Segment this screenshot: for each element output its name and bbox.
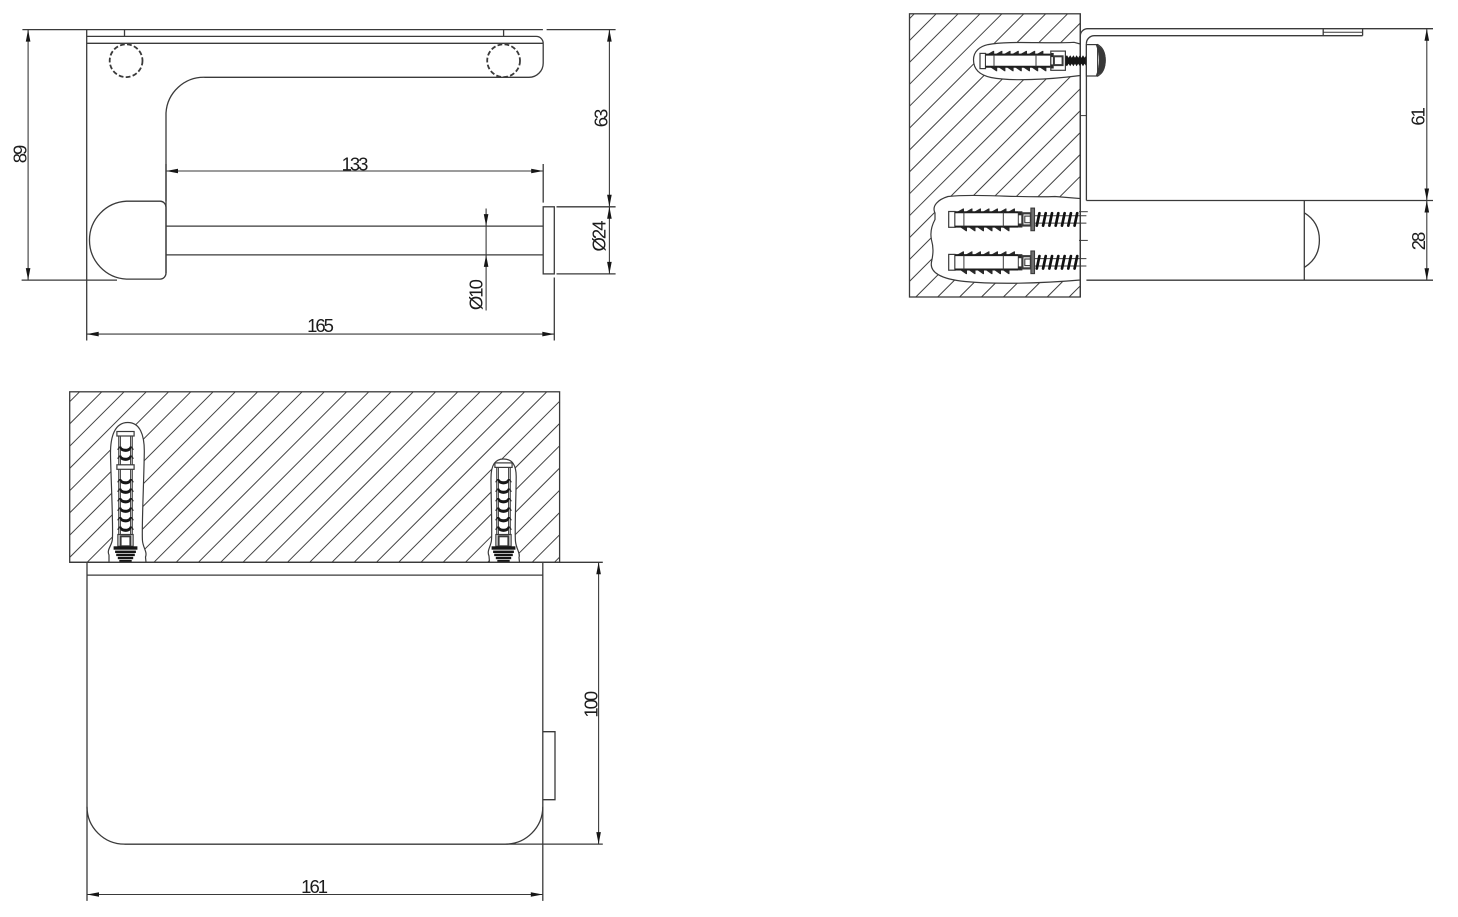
svg-text:61: 61: [1408, 107, 1429, 125]
svg-text:165: 165: [307, 315, 334, 336]
svg-text:28: 28: [1408, 232, 1429, 250]
svg-text:Ø24: Ø24: [588, 221, 609, 252]
svg-text:133: 133: [342, 154, 369, 175]
svg-text:Ø10: Ø10: [466, 279, 487, 310]
svg-text:63: 63: [590, 109, 611, 127]
svg-text:89: 89: [10, 145, 31, 163]
svg-text:100: 100: [581, 691, 602, 718]
svg-text:161: 161: [301, 876, 328, 897]
